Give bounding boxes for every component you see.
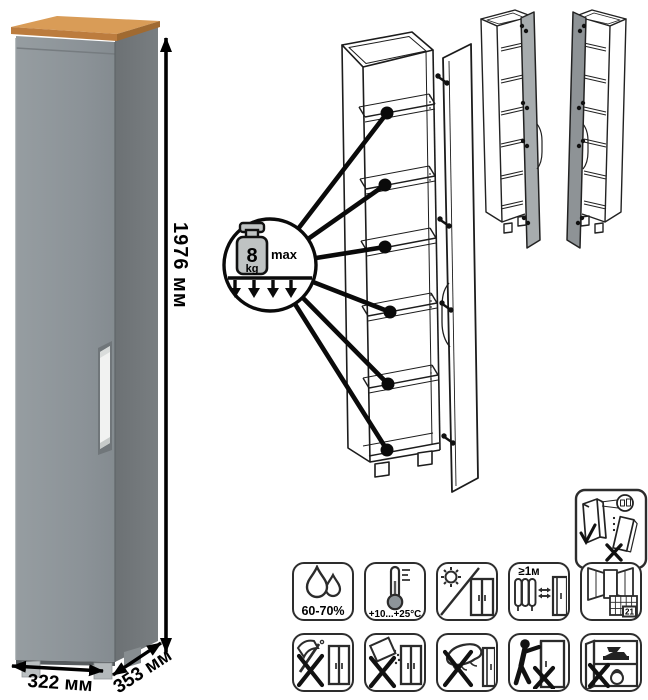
- variant-door-right: [477, 6, 551, 254]
- anti-tip-wall-mount-icon: [574, 488, 648, 570]
- no-dragging-icon: [508, 633, 570, 692]
- door-panel: [567, 12, 586, 248]
- weight-icon: 8 kg: [237, 223, 267, 275]
- variant-door-left: [556, 6, 630, 254]
- no-impact-icon: [292, 633, 354, 692]
- height-dimension-label: 1976 мм: [168, 222, 191, 309]
- care-icon-grid: 60-70% +10...+25°C: [292, 562, 642, 692]
- shelf-dots: [379, 107, 397, 457]
- svg-text:21: 21: [625, 608, 634, 617]
- open-cabinet-drawing: [342, 32, 478, 492]
- ventilation-acclimatization-icon: 21: [580, 562, 642, 621]
- heat-source-distance-icon: ≥1м: [508, 562, 570, 621]
- shelf-diagram: 8 kg max: [213, 16, 481, 494]
- door-panel: [521, 12, 540, 248]
- max-load-callout: 8 kg max: [224, 219, 316, 311]
- svg-text:+10...+25°C: +10...+25°C: [369, 609, 421, 618]
- no-abrasives-icon: [364, 633, 426, 692]
- svg-text:60-70%: 60-70%: [301, 604, 344, 618]
- product-sheet: 1976 мм 322 мм 353 мм: [0, 0, 648, 700]
- no-overload-icon: [580, 633, 642, 692]
- max-label: max: [271, 247, 298, 262]
- svg-text:kg: kg: [246, 263, 259, 275]
- temperature-range-icon: +10...+25°C: [364, 562, 426, 621]
- humidity-icon: 60-70%: [292, 562, 354, 621]
- no-direct-sunlight-icon: [436, 562, 498, 621]
- no-wet-cleaning-icon: [436, 633, 498, 692]
- dimension-arrows: [0, 0, 210, 700]
- svg-text:≥1м: ≥1м: [518, 566, 539, 578]
- open-door: [442, 44, 478, 492]
